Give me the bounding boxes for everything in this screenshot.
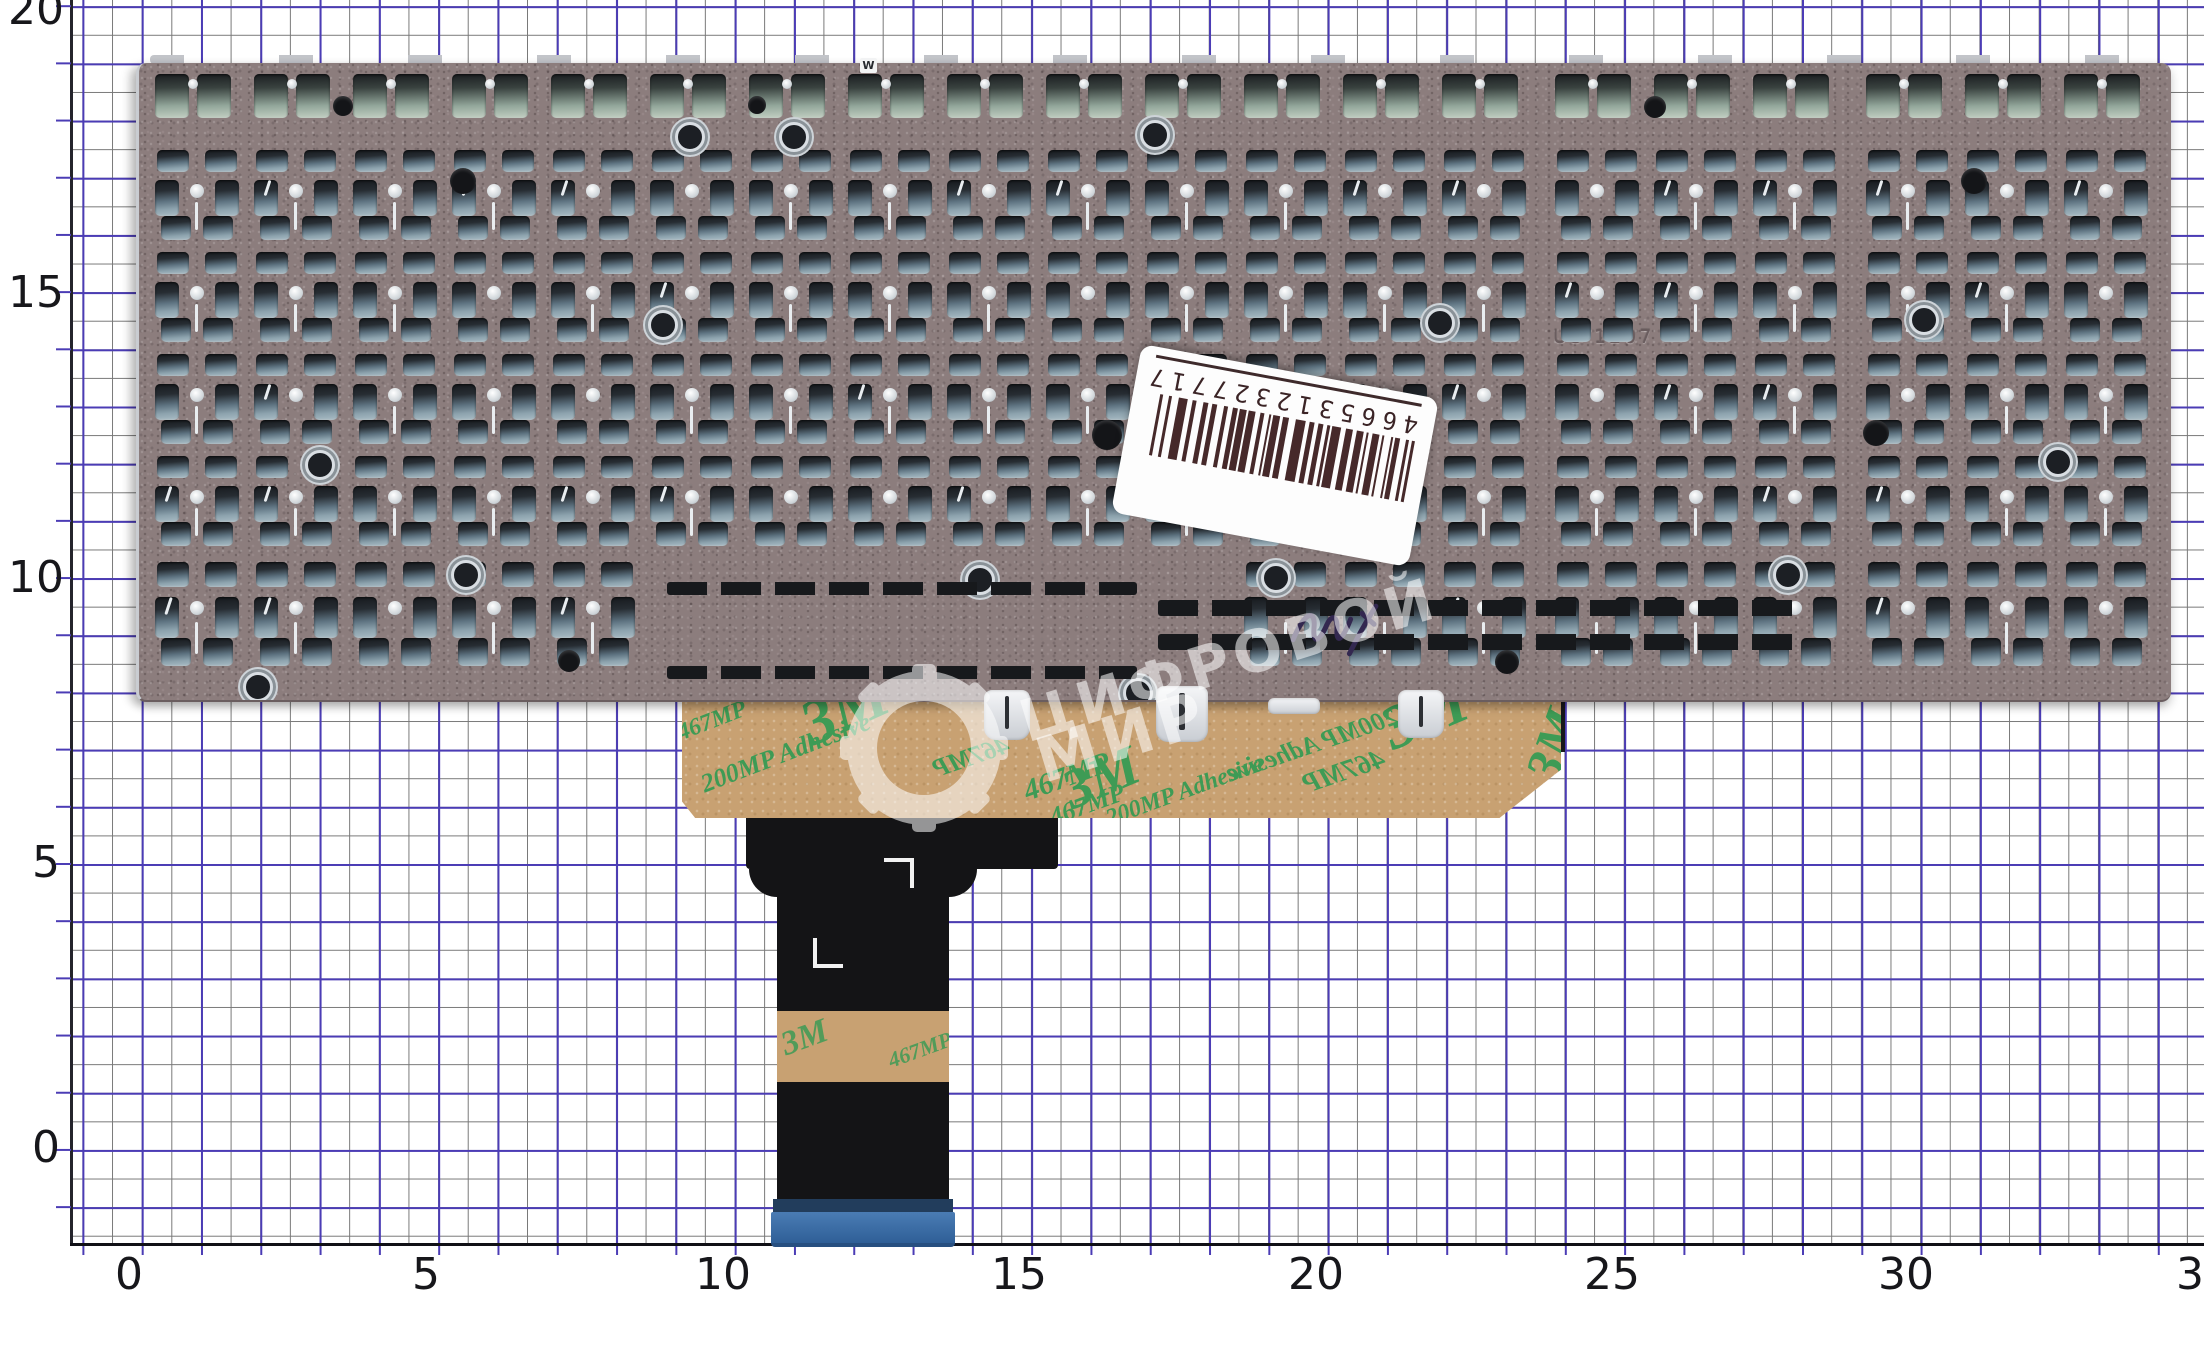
plate-detail (190, 286, 204, 300)
plate-detail (1052, 522, 1082, 546)
plate-detail (1863, 420, 1889, 446)
plate-detail (1803, 562, 1835, 587)
plate-detail (1046, 486, 1070, 522)
plate-detail (1597, 74, 1631, 118)
plate-detail (452, 74, 486, 118)
plate-detail (289, 490, 303, 504)
plate-detail (1444, 252, 1476, 274)
plate-detail (1773, 560, 1803, 590)
plate-detail (1343, 282, 1367, 318)
plate-detail (551, 282, 575, 318)
plate-detail (553, 150, 585, 172)
plate-detail (1502, 180, 1526, 216)
plate-detail (1590, 184, 1604, 198)
plate-detail (458, 522, 488, 546)
plate-detail (2104, 508, 2107, 536)
plate-detail (205, 252, 237, 274)
plate-detail (1482, 508, 1485, 536)
plate-detail (458, 638, 488, 666)
plate-detail (203, 420, 233, 444)
plate-detail (1385, 74, 1419, 118)
plate-detail (898, 354, 930, 376)
plate-detail (2015, 252, 2047, 274)
plate-detail (1096, 354, 1128, 376)
plate-detail (557, 216, 587, 240)
plate-detail (883, 184, 897, 198)
plate-detail (1590, 286, 1604, 300)
key-cutout-cluster (353, 354, 437, 446)
key-cutout-cluster (1145, 150, 1229, 242)
plate-detail (1349, 318, 1379, 342)
plate-detail (302, 420, 332, 444)
plate-detail (953, 420, 983, 444)
plate-detail (1178, 79, 1188, 89)
plate-detail (1088, 74, 1122, 118)
plate-detail (1786, 79, 1796, 89)
plate-detail (2104, 406, 2107, 434)
plate-detail (157, 150, 189, 172)
plate-detail (452, 282, 476, 318)
plate-detail (1557, 354, 1589, 376)
plate-detail (1492, 456, 1524, 478)
plate-detail (1660, 318, 1690, 342)
plate-detail (1007, 384, 1031, 420)
plate-detail (1872, 638, 1902, 666)
plate-detail (502, 252, 534, 274)
plate-detail (898, 456, 930, 478)
plate-detail (1046, 384, 1070, 420)
plate-detail (195, 508, 198, 536)
plate-detail (751, 456, 783, 478)
plate-detail (1660, 216, 1690, 240)
plate-detail (359, 420, 389, 444)
plate-detail (953, 318, 983, 342)
plate-detail (591, 304, 594, 332)
plate-detail (1086, 508, 1089, 536)
plate-detail (1383, 304, 1386, 332)
plate-detail (487, 286, 501, 300)
plate-detail (1343, 74, 1377, 118)
plate-detail (1557, 252, 1589, 274)
key-cutout-cluster (551, 150, 635, 242)
key-cutout-cluster (1753, 74, 1837, 122)
key-cutout-cluster (551, 354, 635, 446)
plate-detail (155, 180, 179, 216)
plate-detail (1901, 490, 1915, 504)
plate-detail (989, 74, 1023, 118)
plate-detail (1813, 384, 1837, 420)
plate-detail (2112, 216, 2142, 240)
plate-detail (2124, 597, 2148, 638)
key-cutout-cluster (1555, 74, 1639, 122)
plate-detail (190, 184, 204, 198)
plate-detail (254, 282, 278, 318)
plate-detail (698, 522, 728, 546)
plate-detail (314, 597, 338, 638)
plate-detail (854, 420, 884, 444)
key-cutout-cluster (1244, 252, 1328, 344)
plate-detail (1759, 522, 1789, 546)
plate-detail (1965, 74, 1999, 118)
plate-detail (1349, 216, 1379, 240)
plate-detail (1279, 184, 1293, 198)
plate-detail (2005, 406, 2008, 434)
plate-detail (487, 601, 501, 615)
plate-detail (388, 286, 402, 300)
plate-detail (1046, 282, 1070, 318)
plate-detail (1393, 150, 1425, 172)
plate-detail (1971, 420, 2001, 444)
plate-detail (1052, 216, 1082, 240)
plate-detail (195, 406, 198, 434)
plate-detail (1448, 522, 1478, 546)
plate-latch-tab-small (1268, 698, 1320, 714)
plate-detail (2000, 388, 2014, 402)
key-cutout-cluster (749, 354, 833, 446)
plate-detail (883, 490, 897, 504)
plate-detail (1193, 216, 1223, 240)
plate-detail (413, 384, 437, 420)
plate-detail (1714, 384, 1738, 420)
plate-detail (1605, 562, 1637, 587)
key-cutout-cluster (155, 456, 239, 548)
plate-detail (1490, 420, 1520, 444)
ribbon-adhesive-band: 3M 467MP (777, 1011, 949, 1082)
plate-detail (779, 122, 809, 152)
plate-detail (401, 638, 431, 666)
plate-detail (2005, 304, 2008, 332)
plate-detail (2013, 420, 2043, 444)
plate-detail (256, 252, 288, 274)
plate-detail (1294, 150, 1326, 172)
plate-detail (1687, 79, 1697, 89)
plate-detail (1490, 522, 1520, 546)
plate-detail (652, 456, 684, 478)
plate-detail (1007, 486, 1031, 522)
plate-detail (1106, 384, 1130, 420)
key-cutout-cluster (1046, 74, 1130, 122)
plate-detail (1145, 180, 1169, 216)
plate-detail (1813, 180, 1837, 216)
plate-detail (500, 216, 530, 240)
plate-detail (1967, 252, 1999, 274)
plate-detail (2064, 74, 2098, 118)
plate-detail (1914, 522, 1944, 546)
plate-detail (1106, 282, 1130, 318)
plate-detail (1195, 252, 1227, 274)
plate-detail (256, 150, 288, 172)
plate-detail (1605, 354, 1637, 376)
plate-detail (1868, 354, 1900, 376)
plate-detail (848, 486, 872, 522)
plate-detail (1689, 184, 1703, 198)
plate-detail (1660, 522, 1690, 546)
plate-detail (1490, 216, 1520, 240)
plate-detail (359, 638, 389, 666)
x-axis-label: 15 (991, 1253, 1047, 1297)
plate-detail (1926, 597, 1950, 638)
plate-detail (591, 622, 594, 654)
plate-detail (215, 384, 239, 420)
plate-detail (667, 582, 1137, 595)
plate-detail (2112, 420, 2142, 444)
plate-detail (652, 354, 684, 376)
plate-detail (1448, 216, 1478, 240)
plate-detail (1403, 282, 1427, 318)
plate-detail (1868, 456, 1900, 478)
plate-detail (848, 180, 872, 216)
plate-detail (1094, 522, 1124, 546)
plate-detail (355, 354, 387, 376)
plate-detail (1561, 420, 1591, 444)
plate-detail (1492, 150, 1524, 172)
x-axis-label: 25 (1584, 1253, 1640, 1297)
plate-detail (599, 420, 629, 444)
plate-detail (1193, 318, 1223, 342)
plate-detail (611, 486, 635, 522)
plate-detail (1704, 456, 1736, 478)
plate-detail (1795, 74, 1829, 118)
plate-detail (1588, 79, 1598, 89)
key-cutout-cluster (650, 74, 734, 122)
plate-detail (652, 252, 684, 274)
plate-detail (1916, 456, 1948, 478)
plate-detail (2114, 150, 2146, 172)
plate-detail (748, 96, 766, 114)
plate-detail (2099, 601, 2113, 615)
key-cutout-cluster (650, 150, 734, 242)
plate-detail (710, 486, 734, 522)
plate-detail (675, 122, 705, 152)
plate-detail (243, 672, 273, 702)
plate-detail (393, 406, 396, 434)
key-cutout-cluster (1343, 74, 1427, 122)
plate-detail (1477, 184, 1491, 198)
ribbon-registration-mark (813, 938, 843, 968)
plate-detail (2000, 286, 2014, 300)
plate-detail (401, 318, 431, 342)
plate-detail (260, 420, 290, 444)
plate-detail (611, 597, 635, 638)
plate-detail (799, 150, 831, 172)
plate-detail (1615, 486, 1639, 522)
plate-detail (1605, 456, 1637, 478)
plate-detail (353, 384, 377, 420)
plate-detail (1914, 420, 1944, 444)
plate-detail (809, 180, 833, 216)
key-cutout-cluster (353, 456, 437, 548)
plate-detail (690, 508, 693, 536)
adhesive-print-3m: 3M (777, 1012, 833, 1064)
plate-detail (1555, 74, 1589, 118)
plate-detail (1615, 384, 1639, 420)
plate-detail (1868, 150, 1900, 172)
x-axis-label: 5 (412, 1253, 440, 1297)
plate-detail (1448, 420, 1478, 444)
plate-detail (1106, 180, 1130, 216)
plate-detail (1391, 318, 1421, 342)
plate-detail (2025, 282, 2049, 318)
plate-detail (698, 318, 728, 342)
plate-detail (205, 150, 237, 172)
plate-detail (2066, 252, 2098, 274)
plate-detail (2015, 562, 2047, 587)
plate-detail (161, 522, 191, 546)
key-cutout-cluster (1442, 354, 1526, 446)
plate-detail (157, 354, 189, 376)
plate-detail (2124, 486, 2148, 522)
plate-detail (710, 282, 734, 318)
plate-detail (1046, 74, 1080, 118)
plate-detail (1304, 180, 1328, 216)
plate-detail (1187, 74, 1221, 118)
plate-detail (2000, 184, 2014, 198)
plate-detail (1376, 79, 1386, 89)
plate-detail (454, 456, 486, 478)
plate-detail (203, 216, 233, 240)
key-cutout-cluster (848, 354, 932, 446)
plate-detail (314, 384, 338, 420)
x-axis-label: 0 (115, 1253, 143, 1297)
plate-detail (1048, 252, 1080, 274)
key-cutout-cluster (848, 252, 932, 344)
key-cutout-cluster (848, 74, 932, 122)
plate-detail (1393, 354, 1425, 376)
plate-detail (2025, 486, 2049, 522)
plate-detail (997, 150, 1029, 172)
plate-detail (2025, 180, 2049, 216)
plate-detail (452, 486, 476, 522)
plate-detail (1901, 184, 1915, 198)
plate-detail (1901, 388, 1915, 402)
key-cutout-cluster (1965, 74, 2049, 122)
plate-detail (1906, 202, 1909, 230)
plate-detail (1048, 456, 1080, 478)
plate-detail (1965, 597, 1989, 638)
x-axis-label: 30 (1878, 1253, 1934, 1297)
plate-detail (1081, 388, 1095, 402)
plate-detail (294, 508, 297, 536)
plate-detail (599, 318, 629, 342)
plate-detail (949, 150, 981, 172)
plate-detail (2099, 184, 2113, 198)
plate-detail (452, 384, 476, 420)
plate-detail (908, 180, 932, 216)
plate-detail (586, 286, 600, 300)
plate-detail (1967, 562, 1999, 587)
plate-detail (2064, 486, 2088, 522)
key-cutout-cluster (1654, 74, 1738, 122)
plate-detail (784, 184, 798, 198)
plate-detail (1926, 486, 1950, 522)
plate-detail (355, 150, 387, 172)
plate-detail (599, 638, 629, 666)
key-cutout-cluster (1555, 150, 1639, 242)
plate-detail (782, 79, 792, 89)
plate-detail (1492, 354, 1524, 376)
plate-detail (1644, 96, 1666, 118)
plate-detail (1048, 150, 1080, 172)
plate-detail (393, 304, 396, 332)
plate-detail (700, 354, 732, 376)
key-cutout-cluster (1343, 252, 1427, 344)
plate-detail (797, 420, 827, 444)
plate-detail (1158, 600, 1803, 616)
plate-detail (995, 522, 1025, 546)
plate-detail (2070, 638, 2100, 666)
plate-detail (789, 202, 792, 230)
key-cutout-cluster (947, 456, 1031, 548)
plate-detail (294, 304, 297, 332)
plate-detail (1694, 304, 1697, 332)
plate-detail (799, 456, 831, 478)
plate-detail (289, 388, 303, 402)
plate-detail (1866, 74, 1900, 118)
plate-detail (1788, 286, 1802, 300)
plate-detail (1801, 318, 1831, 342)
plate-detail (1961, 168, 1987, 194)
plate-detail (1714, 282, 1738, 318)
plate-detail (1753, 282, 1777, 318)
plate-detail (1007, 180, 1031, 216)
plate-detail (1052, 318, 1082, 342)
plate-detail (395, 74, 429, 118)
key-cutout-cluster (947, 74, 1031, 122)
plate-detail (215, 180, 239, 216)
plate-detail (2124, 384, 2148, 420)
plate-detail (1151, 216, 1181, 240)
plate-detail (1702, 420, 1732, 444)
plate-detail (353, 486, 377, 522)
plate-detail (403, 456, 435, 478)
plate-detail (1092, 420, 1122, 450)
key-cutout-cluster (1555, 354, 1639, 446)
plate-detail (1590, 490, 1604, 504)
plate-detail (2064, 597, 2088, 638)
key-cutout-cluster (1442, 150, 1526, 242)
plate-detail (1555, 486, 1579, 522)
plate-detail (2066, 354, 2098, 376)
plate-detail (1277, 79, 1287, 89)
plate-detail (755, 420, 785, 444)
plate-detail (393, 508, 396, 536)
key-cutout-cluster (1046, 252, 1130, 344)
plate-detail (883, 388, 897, 402)
plate-detail (1603, 318, 1633, 342)
plate-detail (1755, 456, 1787, 478)
x-axis-label: 35 (2176, 1253, 2204, 1297)
plate-detail (1086, 202, 1089, 230)
plate-detail (260, 522, 290, 546)
plate-detail (1971, 318, 2001, 342)
plate-detail (1246, 252, 1278, 274)
plate-detail (982, 490, 996, 504)
plate-detail (650, 384, 674, 420)
plate-detail (601, 150, 633, 172)
plate-detail (2066, 562, 2098, 587)
plate-detail (854, 522, 884, 546)
plate-detail (1284, 304, 1287, 332)
plate-detail (1250, 216, 1280, 240)
key-cutout-cluster (2064, 456, 2148, 548)
key-cutout-cluster (1866, 74, 1950, 122)
plate-detail (2097, 79, 2107, 89)
plate-detail (799, 354, 831, 376)
plate-detail (1656, 562, 1688, 587)
plate-detail (1872, 522, 1902, 546)
plate-detail (289, 184, 303, 198)
plate-detail (799, 252, 831, 274)
